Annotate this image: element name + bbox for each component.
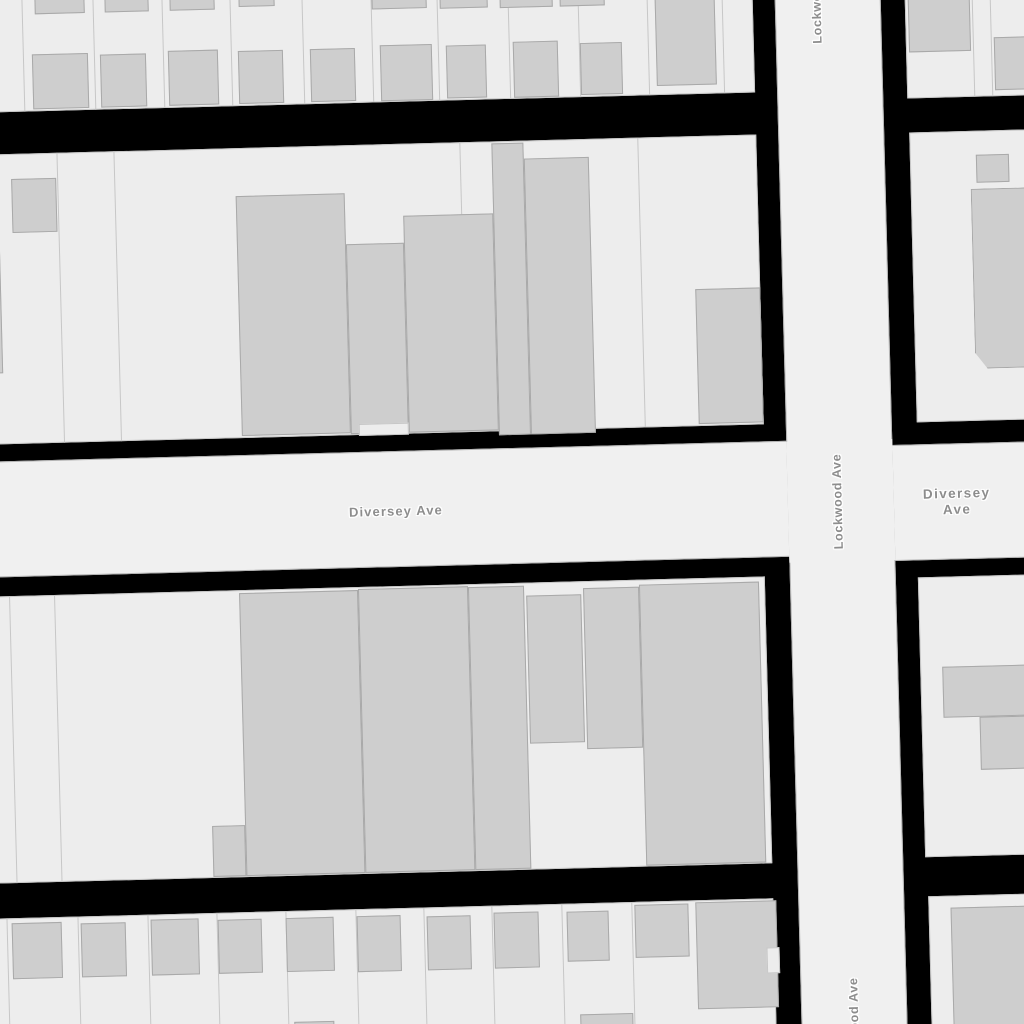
building <box>942 664 1024 718</box>
building <box>357 915 402 972</box>
building <box>524 157 596 435</box>
map-canvas: Diversey Ave Diversey Ave Lockwood Ave L… <box>0 0 1024 1024</box>
building <box>33 0 85 14</box>
building <box>81 922 127 977</box>
road-intersection <box>786 439 895 563</box>
map-viewport[interactable]: Diversey Ave Diversey Ave Lockwood Ave L… <box>0 0 1024 1024</box>
building <box>151 918 200 975</box>
building <box>980 715 1024 770</box>
building <box>513 41 559 98</box>
building <box>358 586 475 873</box>
building <box>212 825 246 877</box>
road-diversey-ave-west <box>0 441 791 580</box>
parcel-notch <box>766 947 780 973</box>
building <box>558 0 605 7</box>
building <box>580 42 623 95</box>
building <box>468 586 531 870</box>
building <box>103 0 149 12</box>
building <box>100 53 147 107</box>
building <box>653 0 717 86</box>
building <box>526 594 585 743</box>
building <box>438 0 488 9</box>
building <box>11 178 57 233</box>
building <box>971 187 1024 369</box>
building <box>237 0 275 7</box>
building <box>32 53 89 109</box>
building <box>583 587 643 749</box>
building <box>238 50 284 104</box>
building <box>236 193 351 436</box>
building <box>580 1013 634 1024</box>
building <box>12 922 63 979</box>
building <box>498 0 553 8</box>
building <box>168 0 215 11</box>
building <box>566 911 609 962</box>
building <box>695 287 764 424</box>
building <box>403 213 499 432</box>
road-diversey-ave-east <box>891 439 1024 561</box>
building <box>239 590 365 876</box>
building <box>951 905 1024 1024</box>
building <box>906 0 971 52</box>
building <box>427 915 472 970</box>
building <box>994 36 1024 90</box>
building <box>218 919 263 974</box>
building <box>493 911 539 968</box>
map-rotated-plane: Diversey Ave Diversey Ave Lockwood Ave L… <box>0 0 1024 1024</box>
building <box>380 44 433 101</box>
building <box>639 582 766 866</box>
building <box>370 0 427 9</box>
building <box>346 243 409 434</box>
parcel-notch <box>359 423 409 436</box>
building <box>168 50 219 106</box>
building <box>286 917 335 972</box>
building <box>310 48 356 102</box>
building <box>634 904 689 958</box>
building <box>976 154 1010 183</box>
building <box>446 45 487 99</box>
